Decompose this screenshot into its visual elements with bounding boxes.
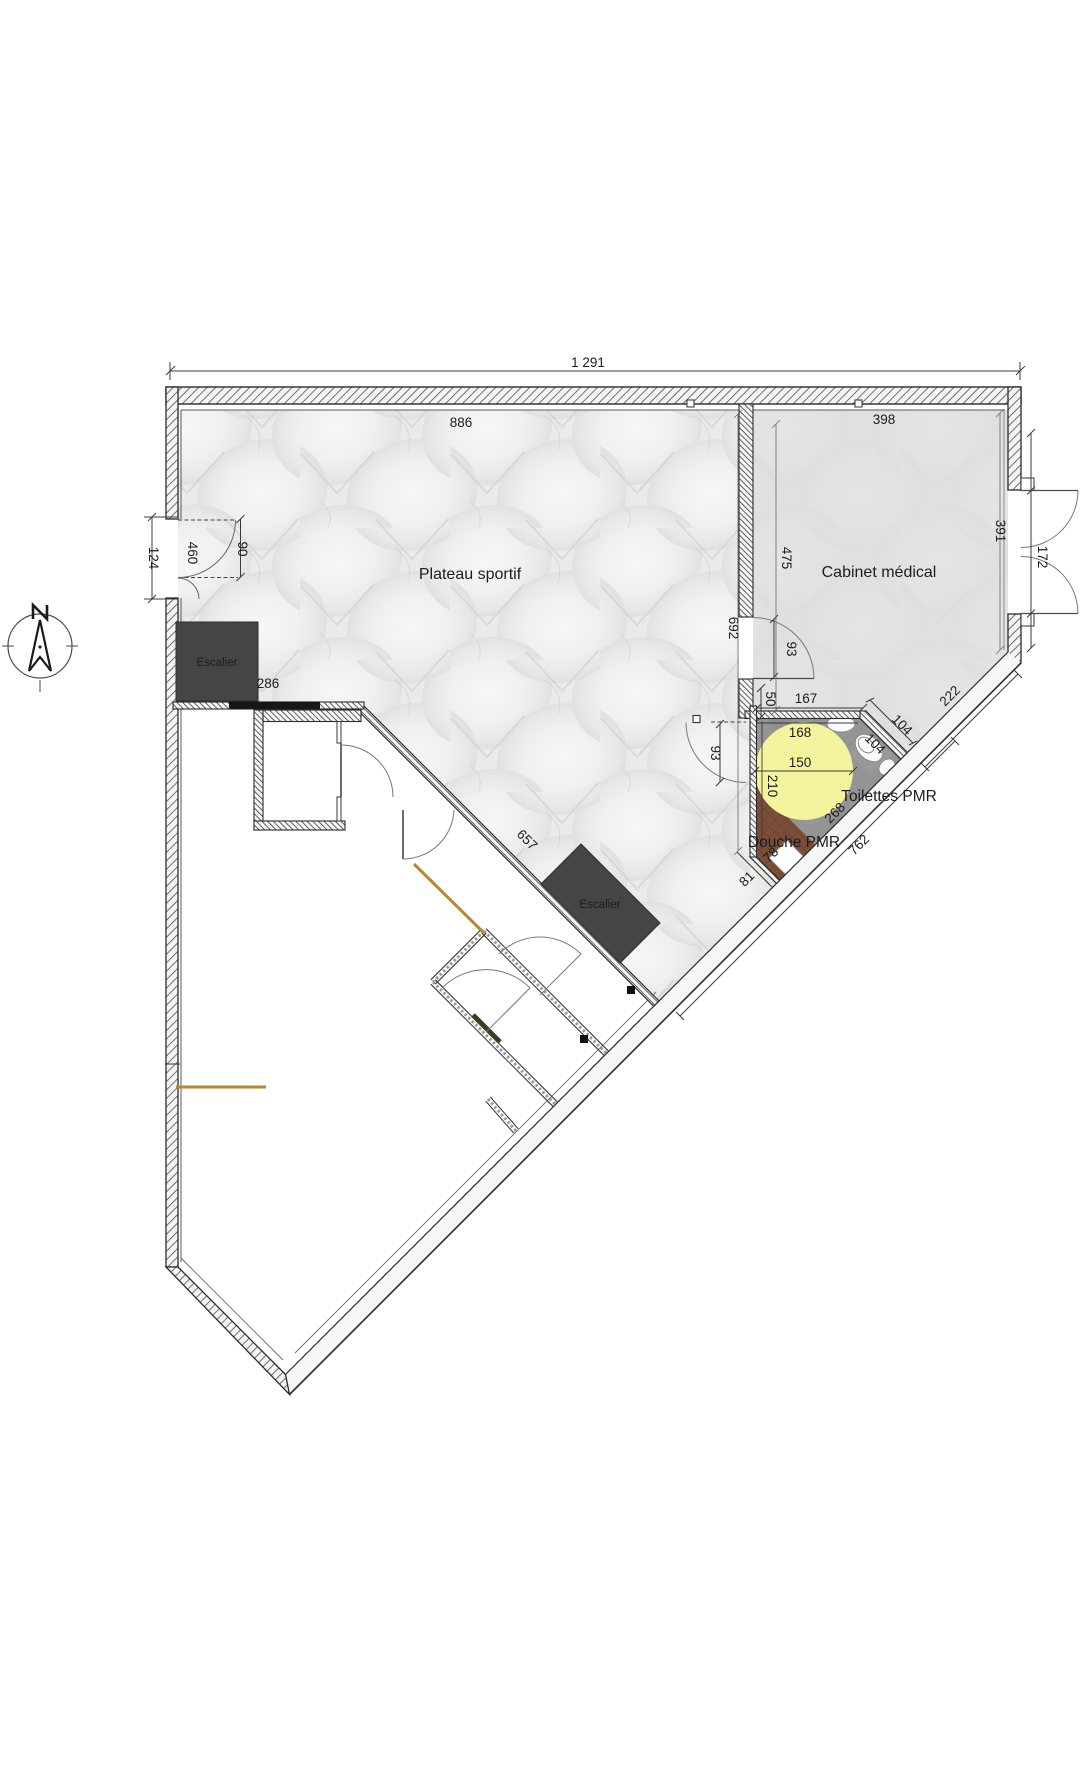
svg-text:150: 150 — [789, 755, 812, 770]
svg-text:692: 692 — [726, 617, 741, 640]
svg-text:167: 167 — [795, 691, 818, 706]
svg-text:1 291: 1 291 — [571, 355, 605, 370]
svg-text:Escalier: Escalier — [197, 657, 238, 669]
svg-text:886: 886 — [450, 415, 473, 430]
svg-text:168: 168 — [789, 725, 812, 740]
svg-text:93: 93 — [784, 641, 799, 656]
svg-text:286: 286 — [257, 676, 280, 691]
svg-text:Escalier: Escalier — [580, 899, 621, 911]
svg-text:Toilettes PMR: Toilettes PMR — [841, 788, 937, 805]
svg-text:93: 93 — [708, 745, 723, 760]
svg-text:398: 398 — [873, 412, 896, 427]
svg-text:Cabinet médical: Cabinet médical — [822, 564, 937, 581]
svg-text:50: 50 — [763, 691, 778, 706]
svg-text:172: 172 — [1035, 546, 1050, 569]
svg-text:391: 391 — [993, 520, 1008, 543]
svg-text:Plateau sportif: Plateau sportif — [419, 566, 522, 583]
svg-text:124: 124 — [146, 547, 161, 570]
svg-text:90: 90 — [235, 541, 250, 556]
svg-text:475: 475 — [779, 547, 794, 570]
svg-text:Douche PMR: Douche PMR — [748, 834, 840, 851]
svg-text:210: 210 — [765, 775, 780, 798]
svg-text:460: 460 — [185, 542, 200, 565]
